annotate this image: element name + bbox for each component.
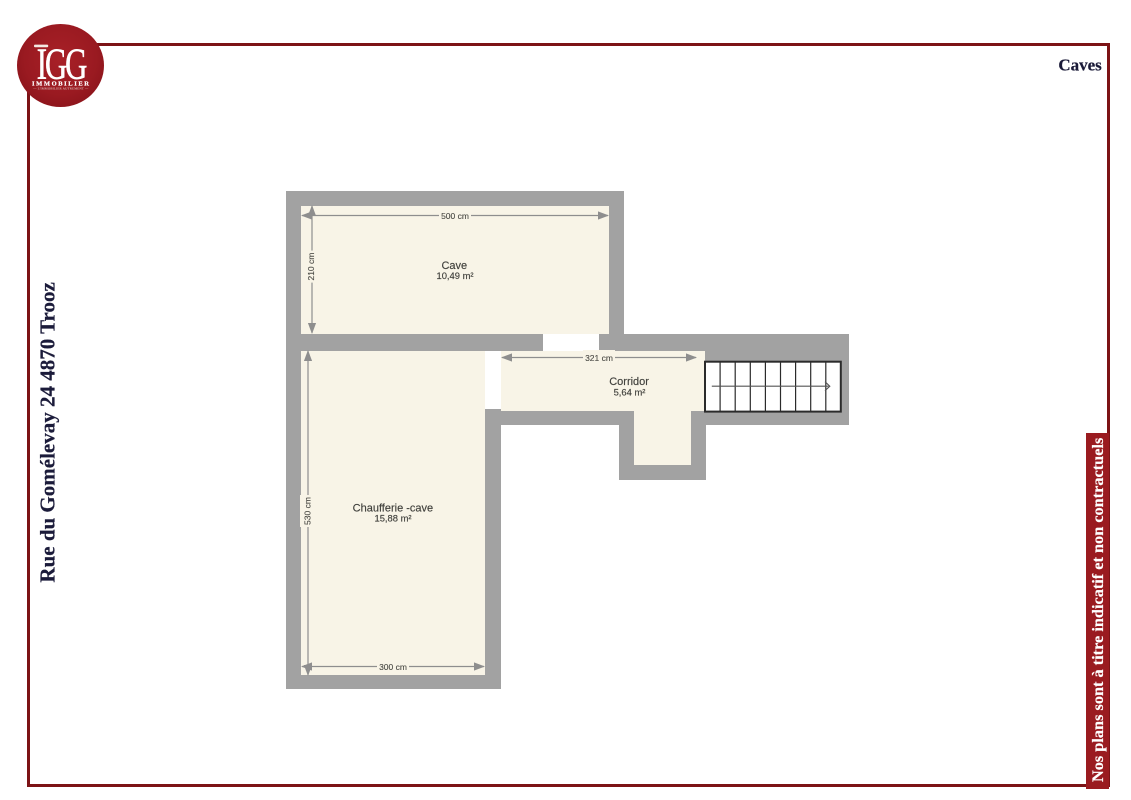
svg-text:10,49 m²: 10,49 m² <box>437 270 474 281</box>
svg-text:5,64 m²: 5,64 m² <box>614 386 646 397</box>
svg-text:— L'IMMOBILIER AUTREMENT —: — L'IMMOBILIER AUTREMENT — <box>32 86 89 90</box>
svg-text:15,88 m²: 15,88 m² <box>375 512 412 523</box>
svg-text:Caves: Caves <box>1058 56 1102 75</box>
svg-text:Rue du Gomélevay 24 4870 Trooz: Rue du Gomélevay 24 4870 Trooz <box>35 282 59 582</box>
svg-text:Nos plans sont à titre indicat: Nos plans sont à titre indicatif et non … <box>1088 438 1107 782</box>
